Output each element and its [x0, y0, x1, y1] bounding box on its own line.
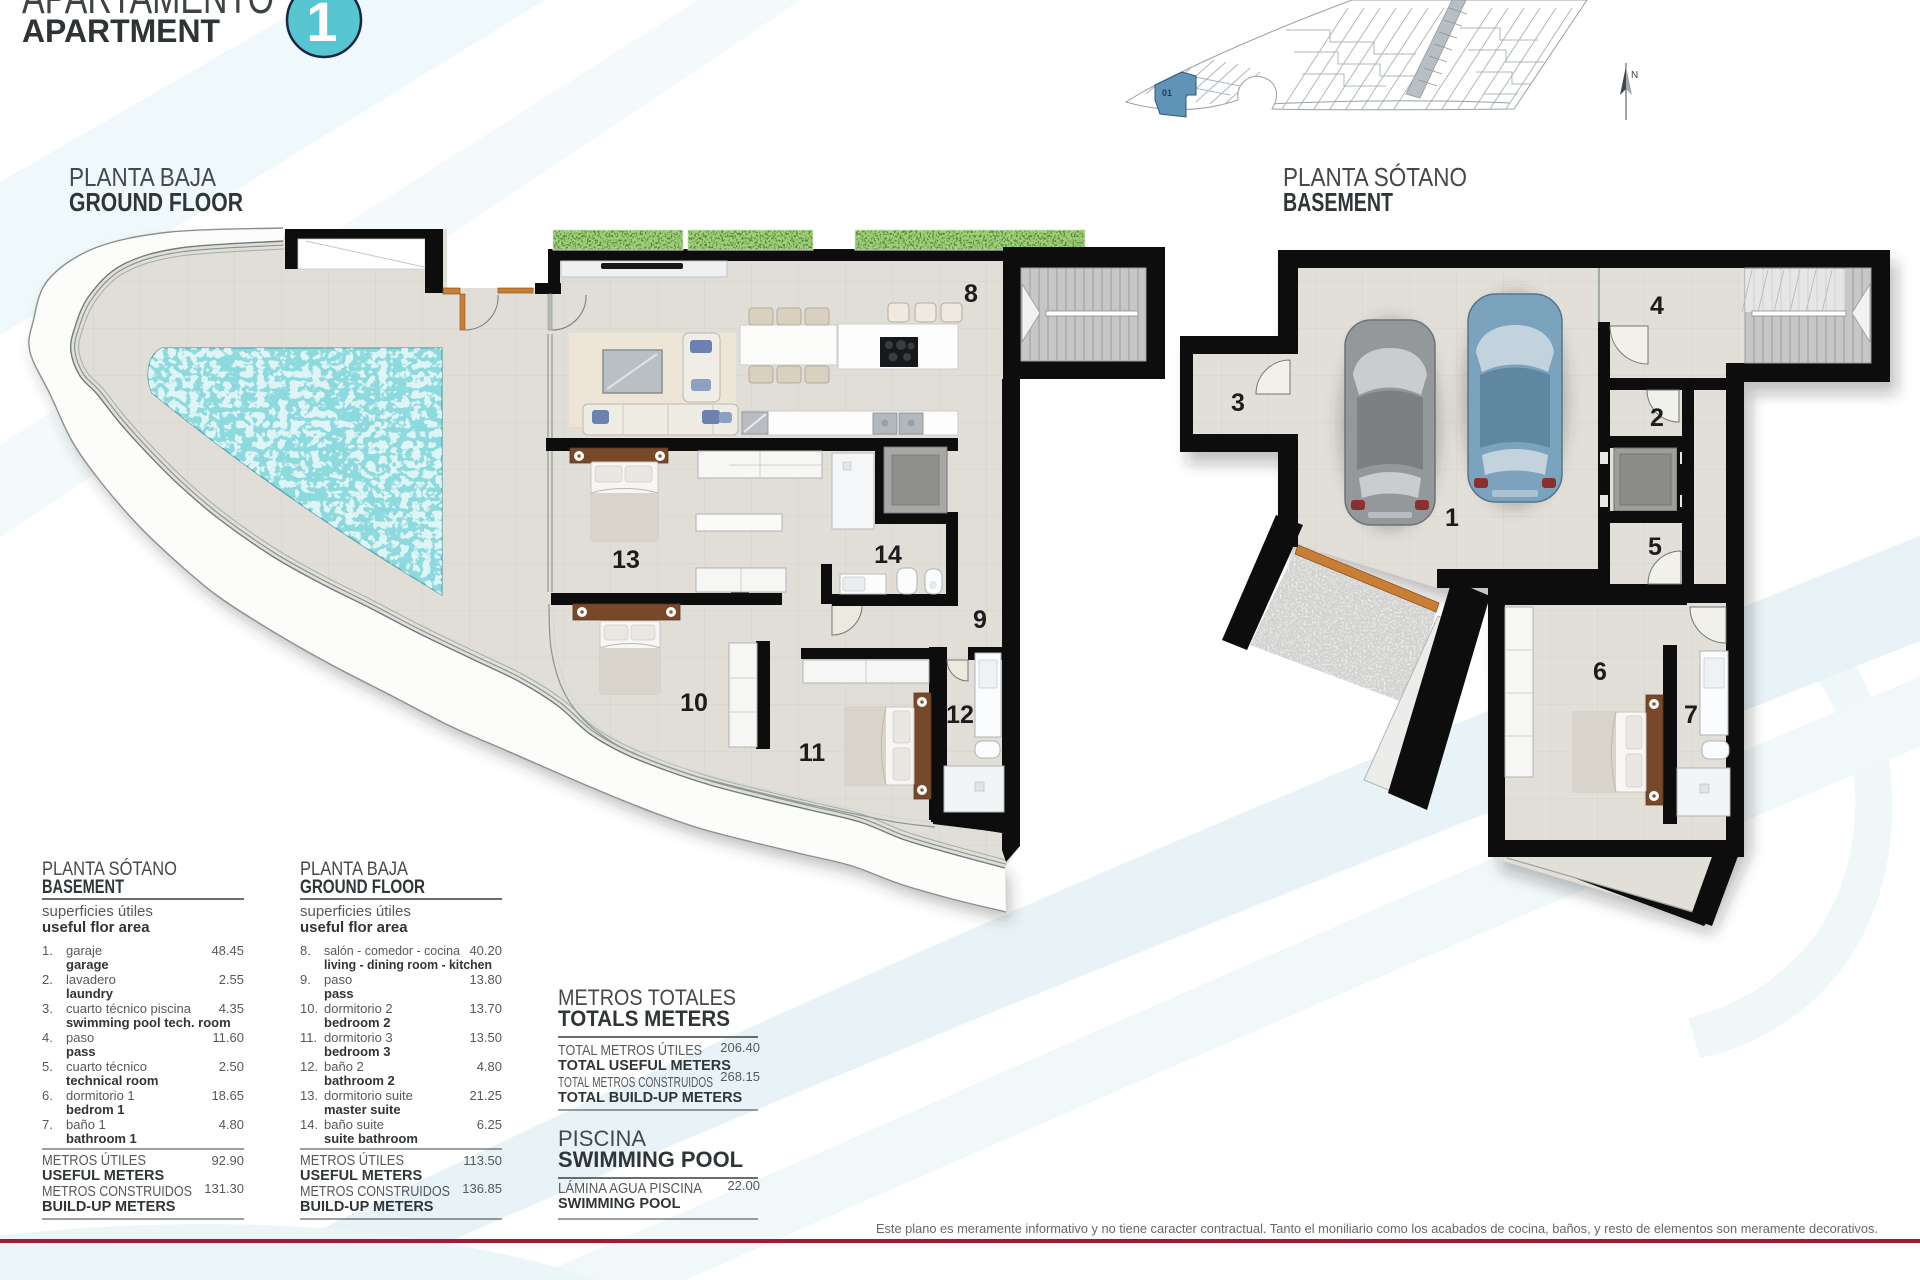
svg-text:BASEMENT: BASEMENT — [1283, 187, 1393, 217]
svg-text:4.35: 4.35 — [219, 1001, 244, 1016]
svg-text:pass: pass — [66, 1044, 96, 1059]
svg-text:4.: 4. — [42, 1030, 53, 1045]
svg-text:5: 5 — [1648, 533, 1662, 561]
svg-text:SWIMMING POOL: SWIMMING POOL — [558, 1196, 681, 1212]
svg-text:garaje: garaje — [66, 943, 102, 958]
svg-text:13.70: 13.70 — [469, 1001, 502, 1016]
svg-text:paso: paso — [66, 1030, 94, 1045]
svg-text:dormitorio suite: dormitorio suite — [324, 1088, 413, 1103]
svg-text:USEFUL METERS: USEFUL METERS — [300, 1168, 423, 1184]
svg-text:14: 14 — [874, 541, 902, 569]
svg-text:baño suite: baño suite — [324, 1117, 384, 1132]
svg-text:4: 4 — [1650, 292, 1664, 320]
svg-text:dormitorio 2: dormitorio 2 — [324, 1001, 393, 1016]
svg-text:6: 6 — [1593, 658, 1607, 686]
svg-text:11.: 11. — [300, 1030, 317, 1045]
svg-text:baño 1: baño 1 — [66, 1117, 106, 1132]
svg-text:21.25: 21.25 — [469, 1088, 502, 1103]
svg-text:superficies útiles: superficies útiles — [300, 903, 411, 920]
svg-text:METROS CONSTRUIDOS: METROS CONSTRUIDOS — [42, 1184, 192, 1200]
svg-text:TOTAL BUILD-UP METERS: TOTAL BUILD-UP METERS — [558, 1090, 743, 1106]
svg-text:GROUND FLOOR: GROUND FLOOR — [69, 187, 243, 217]
svg-text:salón - comedor - cocina: salón - comedor - cocina — [324, 943, 461, 958]
svg-text:laundry: laundry — [66, 986, 114, 1001]
svg-text:useful flor area: useful flor area — [300, 919, 408, 936]
svg-text:lavadero: lavadero — [66, 972, 116, 987]
svg-text:13.80: 13.80 — [469, 972, 502, 987]
svg-text:12: 12 — [946, 701, 974, 729]
svg-text:dormitorio 1: dormitorio 1 — [66, 1088, 135, 1103]
svg-text:10: 10 — [680, 689, 708, 717]
svg-text:01: 01 — [1162, 88, 1172, 98]
svg-text:6.: 6. — [42, 1088, 53, 1103]
svg-text:206.40: 206.40 — [720, 1040, 760, 1055]
svg-text:13.50: 13.50 — [469, 1030, 502, 1045]
svg-text:8.: 8. — [300, 943, 311, 958]
svg-text:3: 3 — [1231, 389, 1245, 417]
svg-text:12.: 12. — [300, 1059, 318, 1074]
svg-text:baño 2: baño 2 — [324, 1059, 364, 1074]
svg-text:6.25: 6.25 — [477, 1117, 502, 1132]
svg-text:11.60: 11.60 — [212, 1030, 244, 1045]
svg-text:11: 11 — [799, 739, 826, 767]
svg-text:14.: 14. — [300, 1117, 318, 1132]
svg-text:TOTALS METERS: TOTALS METERS — [558, 1006, 730, 1031]
svg-text:SWIMMING POOL: SWIMMING POOL — [558, 1147, 743, 1172]
svg-text:superficies útiles: superficies útiles — [42, 903, 153, 920]
svg-text:METROS CONSTRUIDOS: METROS CONSTRUIDOS — [300, 1184, 450, 1200]
svg-text:9.: 9. — [300, 972, 311, 987]
svg-text:2.50: 2.50 — [219, 1059, 244, 1074]
svg-text:7: 7 — [1684, 701, 1698, 729]
svg-text:USEFUL METERS: USEFUL METERS — [42, 1168, 165, 1184]
svg-text:268.15: 268.15 — [720, 1069, 760, 1084]
svg-text:2: 2 — [1650, 404, 1664, 432]
svg-text:TOTAL METROS CONSTRUIDOS: TOTAL METROS CONSTRUIDOS — [558, 1075, 713, 1091]
svg-text:bedroom 3: bedroom 3 — [324, 1044, 390, 1059]
svg-text:48.45: 48.45 — [211, 943, 244, 958]
svg-text:13: 13 — [612, 546, 640, 574]
svg-text:8: 8 — [964, 280, 978, 308]
svg-text:1: 1 — [306, 0, 337, 53]
svg-text:N: N — [1631, 70, 1638, 81]
svg-text:METROS ÚTILES: METROS ÚTILES — [300, 1152, 404, 1169]
svg-text:18.65: 18.65 — [211, 1088, 244, 1103]
svg-text:2.55: 2.55 — [219, 972, 244, 987]
svg-text:APARTMENT: APARTMENT — [22, 13, 220, 49]
svg-text:4.80: 4.80 — [477, 1059, 502, 1074]
svg-text:swimming pool tech. room: swimming pool tech. room — [66, 1015, 231, 1030]
svg-text:BUILD-UP METERS: BUILD-UP METERS — [300, 1199, 434, 1215]
svg-text:paso: paso — [324, 972, 352, 987]
svg-text:technical room: technical room — [66, 1073, 158, 1088]
svg-text:TOTAL METROS ÚTILES: TOTAL METROS ÚTILES — [558, 1042, 702, 1059]
svg-text:131.30: 131.30 — [204, 1181, 244, 1196]
svg-text:4.80: 4.80 — [219, 1117, 244, 1132]
svg-text:garage: garage — [66, 957, 109, 972]
svg-text:2.: 2. — [42, 972, 53, 987]
svg-text:cuarto técnico piscina: cuarto técnico piscina — [66, 1001, 192, 1016]
svg-text:cuarto técnico: cuarto técnico — [66, 1059, 147, 1074]
svg-text:TOTAL USEFUL METERS: TOTAL USEFUL METERS — [558, 1058, 731, 1074]
svg-text:5.: 5. — [42, 1059, 53, 1074]
svg-text:GROUND FLOOR: GROUND FLOOR — [300, 877, 425, 898]
svg-text:136.85: 136.85 — [462, 1181, 502, 1196]
svg-text:pass: pass — [324, 986, 354, 1001]
svg-text:7.: 7. — [42, 1117, 53, 1132]
svg-text:3.: 3. — [42, 1001, 53, 1016]
svg-text:10.: 10. — [300, 1001, 318, 1016]
svg-text:1.: 1. — [42, 943, 53, 958]
svg-text:Este plano es meramente inform: Este plano es meramente informativo y no… — [876, 1221, 1878, 1236]
svg-text:LÁMINA AGUA PISCINA: LÁMINA AGUA PISCINA — [558, 1180, 702, 1197]
svg-text:113.50: 113.50 — [463, 1153, 502, 1168]
svg-text:bedrom 1: bedrom 1 — [66, 1102, 125, 1117]
svg-text:bathroom 2: bathroom 2 — [324, 1073, 395, 1088]
svg-text:1: 1 — [1445, 504, 1459, 532]
svg-text:bedroom 2: bedroom 2 — [324, 1015, 390, 1030]
svg-text:METROS ÚTILES: METROS ÚTILES — [42, 1152, 146, 1169]
svg-text:master suite: master suite — [324, 1102, 401, 1117]
svg-text:suite bathroom: suite bathroom — [324, 1131, 418, 1146]
svg-text:BUILD-UP METERS: BUILD-UP METERS — [42, 1199, 176, 1215]
svg-text:9: 9 — [973, 606, 987, 634]
svg-text:40.20: 40.20 — [469, 943, 502, 958]
svg-text:22.00: 22.00 — [727, 1178, 760, 1193]
svg-text:BASEMENT: BASEMENT — [42, 877, 124, 898]
svg-text:useful flor area: useful flor area — [42, 919, 150, 936]
svg-text:living - dining room - kitchen: living - dining room - kitchen — [324, 957, 492, 972]
svg-text:bathroom 1: bathroom 1 — [66, 1131, 137, 1146]
svg-text:13.: 13. — [300, 1088, 318, 1103]
svg-text:dormitorio 3: dormitorio 3 — [324, 1030, 393, 1045]
svg-text:92.90: 92.90 — [211, 1153, 244, 1168]
